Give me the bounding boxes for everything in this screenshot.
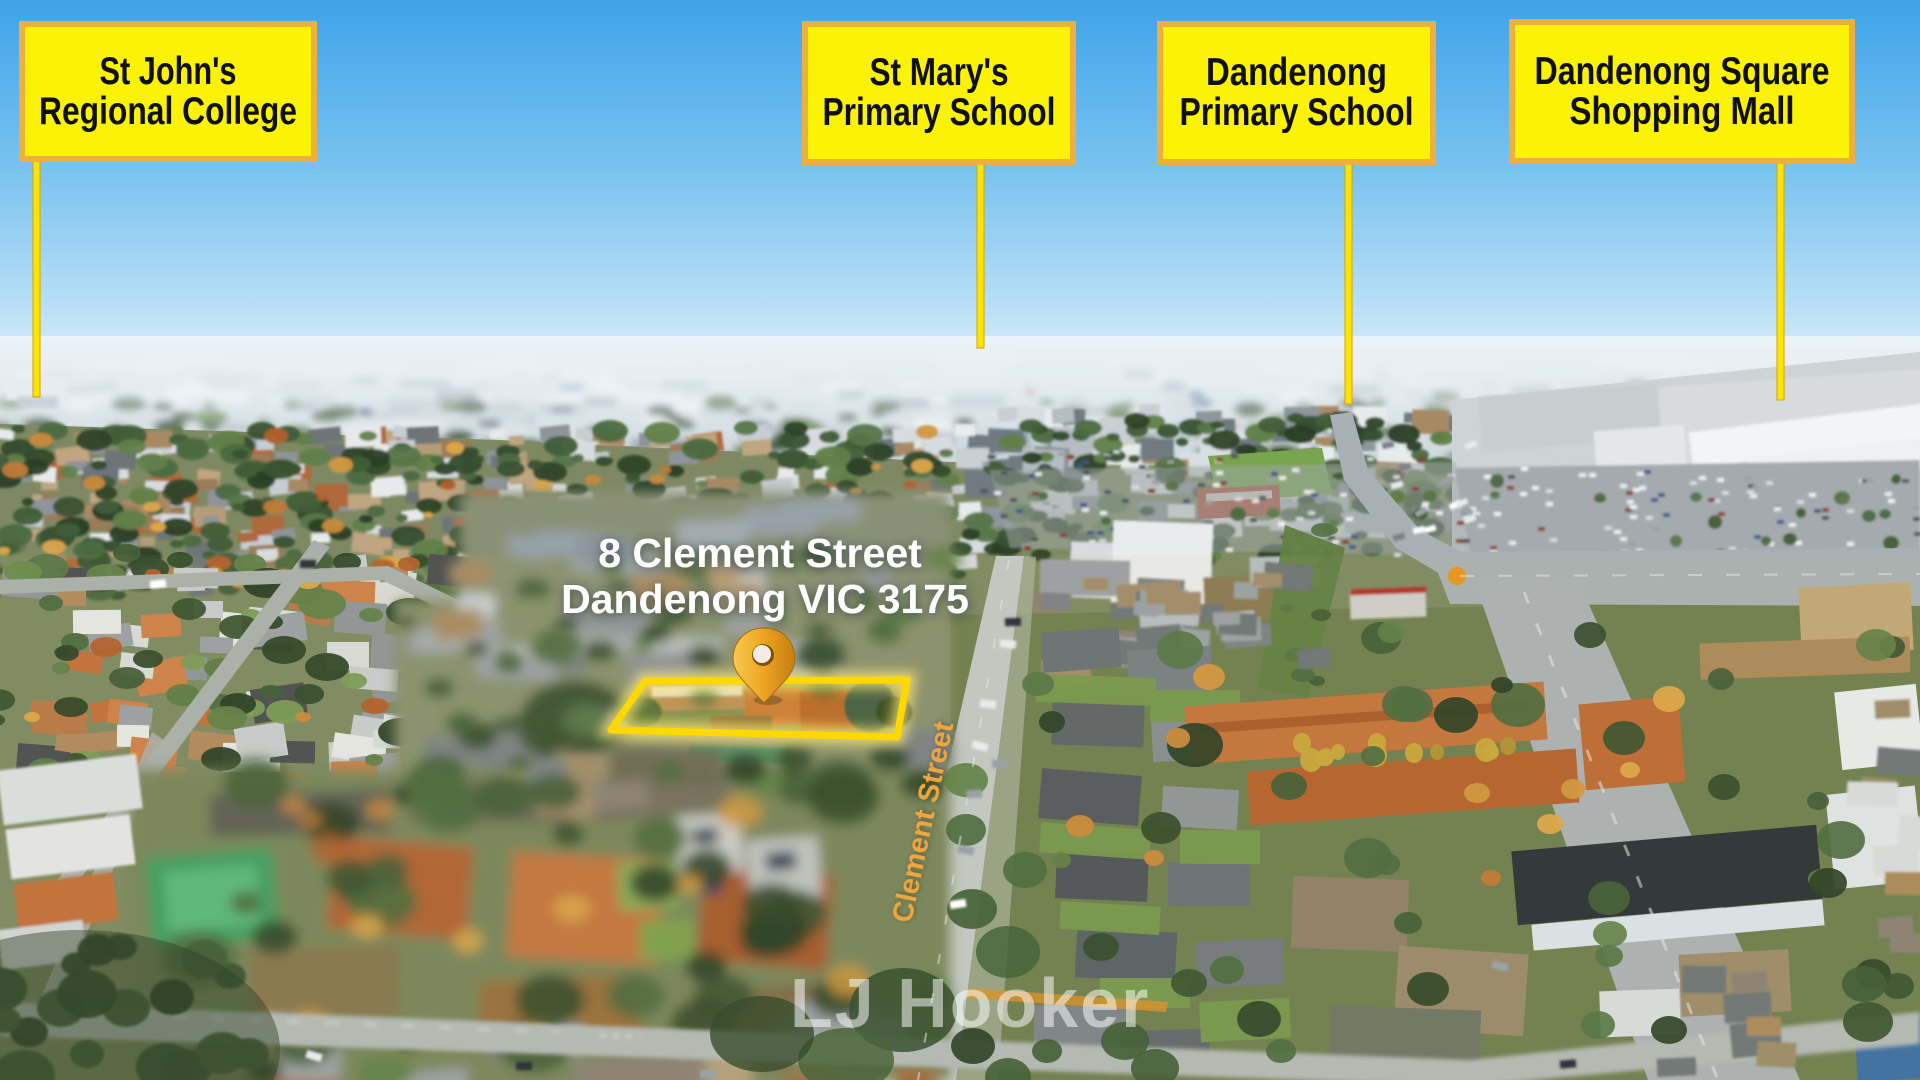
svg-text:Dandenong: Dandenong [1206, 51, 1387, 94]
svg-text:Dandenong Square: Dandenong Square [1535, 50, 1830, 93]
svg-text:Dandenong VIC 3175: Dandenong VIC 3175 [561, 576, 969, 622]
svg-text:Primary School: Primary School [1180, 91, 1414, 134]
svg-text:St John's: St John's [100, 50, 237, 93]
svg-text:Shopping Mall: Shopping Mall [1570, 90, 1795, 133]
svg-text:Regional College: Regional College [39, 90, 297, 133]
svg-text:Primary School: Primary School [823, 91, 1056, 134]
svg-text:St Mary's: St Mary's [870, 51, 1009, 94]
svg-text:8 Clement Street: 8 Clement Street [598, 530, 922, 576]
svg-text:LJ Hooker: LJ Hooker [790, 964, 1150, 1042]
